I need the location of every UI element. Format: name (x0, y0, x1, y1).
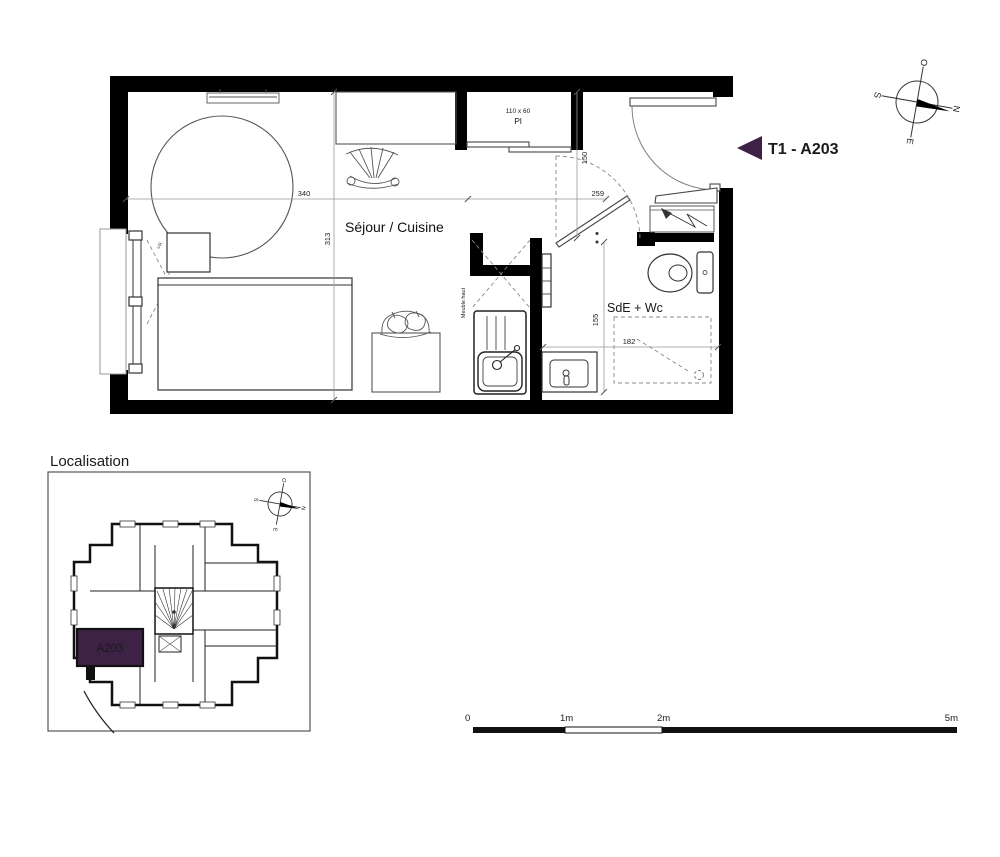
entry-door (630, 98, 720, 191)
toilet (648, 252, 713, 293)
compass-east: E (905, 138, 916, 146)
localisation: Localisation O E S N (48, 453, 310, 733)
shower-area (614, 317, 711, 383)
scale-label-5m: 5m (945, 713, 958, 724)
door-handle-dot (596, 241, 599, 244)
wall-corner-entry (713, 76, 733, 97)
unit-arrow-icon (737, 136, 762, 160)
bed (158, 278, 352, 390)
bathroom (542, 252, 713, 392)
entry-door-swing-arc (632, 106, 716, 190)
dim-living-depth: 313 (323, 233, 332, 246)
window-cap-mid (129, 297, 142, 306)
unit-a203-wall-stub (86, 666, 95, 680)
wall-duct-bar (648, 233, 714, 242)
closet-sliding-door-1 (467, 142, 529, 147)
window-cap-bottom (129, 364, 142, 373)
dim-entry-depth: 150 (580, 152, 589, 165)
living-room-label: Séjour / Cuisine (345, 219, 444, 235)
scale-segment-3 (662, 727, 957, 733)
wall-bathroom-left (530, 238, 542, 402)
kitchen-sink (474, 311, 526, 394)
closet-abbr-label: Pl (514, 116, 522, 126)
window-cap-top (129, 231, 142, 240)
wall-kitchen-bar (470, 265, 536, 276)
dim-bath-depth: 155 (591, 314, 600, 327)
compass-south: S (872, 91, 883, 99)
upper-cabinet-label: Meuble haut (461, 287, 467, 318)
roller-shutter-label: VR (156, 241, 164, 250)
wall-closet-left (455, 92, 467, 150)
kitchen-base-unit (372, 333, 440, 392)
main-floor-plan: VR FAp +90 110 x 60 (100, 76, 733, 414)
compass-needle-icon (916, 99, 951, 112)
bathroom-label: SdE + Wc (607, 301, 663, 315)
dim-living-width: 340 (298, 189, 311, 198)
compass-west: O (918, 58, 929, 67)
wall-top (110, 76, 733, 92)
drawing: VR FAp +90 110 x 60 (0, 0, 1000, 857)
compass-main: O E S N (865, 51, 969, 152)
page: VR FAp +90 110 x 60 (0, 0, 1000, 857)
living-furniture (151, 89, 456, 390)
dim-entry-width: 259 (591, 189, 604, 198)
scale-label-2m: 2m (657, 713, 670, 724)
scale-bar: 0 1m 2m 5m (465, 713, 958, 733)
scale-label-1m: 1m (560, 713, 573, 724)
dim-shower-width: 182 (623, 337, 636, 346)
localisation-title: Localisation (50, 453, 129, 470)
scale-segment-1 (473, 727, 565, 733)
window-sill (100, 229, 126, 374)
entry-door-leaf (630, 98, 716, 106)
door-handle-dot (596, 232, 599, 235)
technical-duct (650, 188, 717, 232)
compass-north: N (951, 105, 962, 113)
duct-door-leaf (655, 188, 717, 203)
closet-sliding-door-2 (509, 147, 571, 152)
bathroom-door (556, 156, 640, 247)
nightstand (167, 233, 210, 272)
wall-duct-nub (637, 232, 655, 246)
cooktop-sketch (380, 311, 431, 338)
wall-left-lower (110, 370, 128, 414)
bathroom-door-leaf (556, 196, 630, 247)
wall-left-upper (110, 76, 128, 234)
kitchen: Meuble haut (372, 240, 530, 394)
unit-a203-label: A203 (97, 643, 124, 655)
unit-label: T1 - A203 (768, 141, 839, 158)
wall-bottom (110, 400, 733, 414)
unit-tag: T1 - A203 (737, 136, 839, 160)
closet-size-label: 110 x 60 (506, 108, 531, 115)
wall-right (719, 188, 733, 414)
desk (336, 92, 456, 144)
towel-radiator (542, 254, 551, 307)
closet: 110 x 60 Pl (467, 108, 571, 152)
washbasin (542, 352, 597, 392)
scale-label-0: 0 (465, 713, 470, 724)
desk-chair (346, 147, 399, 188)
scale-segment-2 (565, 727, 662, 733)
